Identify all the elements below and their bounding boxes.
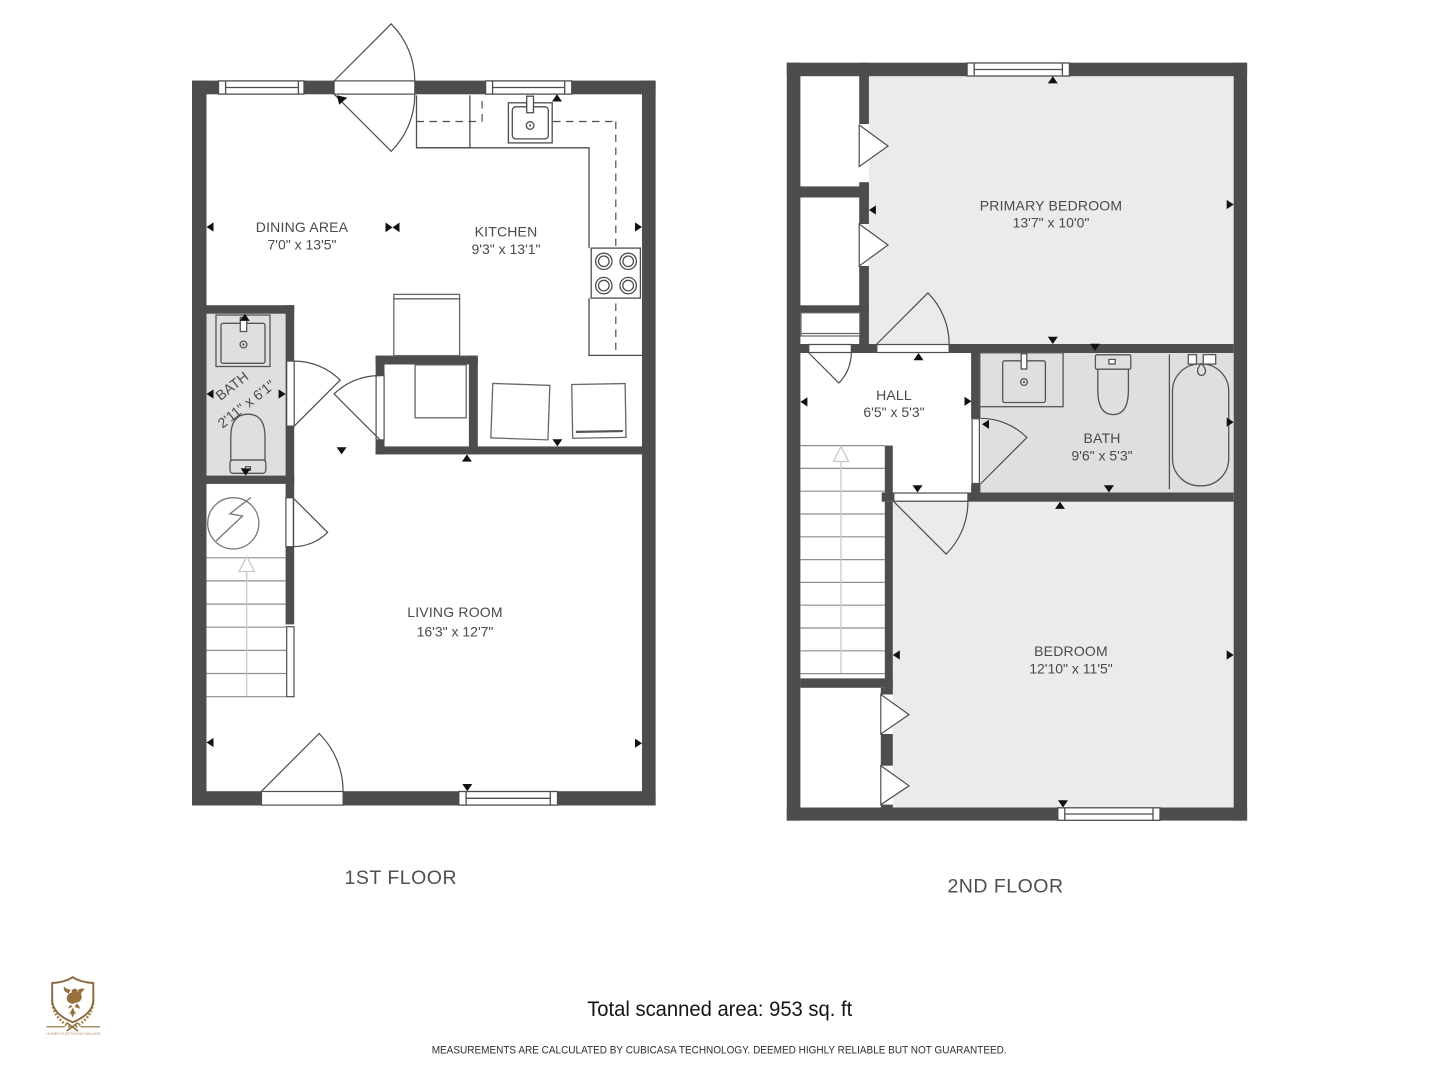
- svg-text:6'5" x 5'3": 6'5" x 5'3": [863, 404, 924, 420]
- svg-text:Total scanned area: 953 sq. ft: Total scanned area: 953 sq. ft: [587, 998, 852, 1021]
- svg-text:LIVING ROOM: LIVING ROOM: [407, 604, 503, 620]
- svg-text:7'0" x 13'5": 7'0" x 13'5": [268, 237, 337, 253]
- svg-text:9'3" x 13'1": 9'3" x 13'1": [472, 241, 541, 257]
- svg-text:BATH: BATH: [1083, 430, 1120, 446]
- svg-text:2ND FLOOR: 2ND FLOOR: [947, 876, 1063, 898]
- svg-text:HALL: HALL: [876, 387, 912, 403]
- svg-text:KITCHEN: KITCHEN: [475, 224, 538, 240]
- svg-text:16'3" x 12'7": 16'3" x 12'7": [417, 624, 494, 640]
- svg-text:1ST FLOOR: 1ST FLOOR: [345, 867, 458, 889]
- svg-text:HOMES FLEETWOOD WALKER: HOMES FLEETWOOD WALKER: [46, 1032, 100, 1036]
- svg-text:DINING AREA: DINING AREA: [256, 219, 349, 235]
- svg-text:BEDROOM: BEDROOM: [1034, 643, 1108, 659]
- svg-text:PRIMARY BEDROOM: PRIMARY BEDROOM: [980, 198, 1123, 214]
- svg-text:12'10" x 11'5": 12'10" x 11'5": [1029, 661, 1113, 677]
- svg-text:9'6" x 5'3": 9'6" x 5'3": [1071, 448, 1132, 464]
- svg-text:13'7" x 10'0": 13'7" x 10'0": [1013, 215, 1090, 231]
- svg-text:MEASUREMENTS ARE CALCULATED BY: MEASUREMENTS ARE CALCULATED BY CUBICASA …: [432, 1044, 1007, 1056]
